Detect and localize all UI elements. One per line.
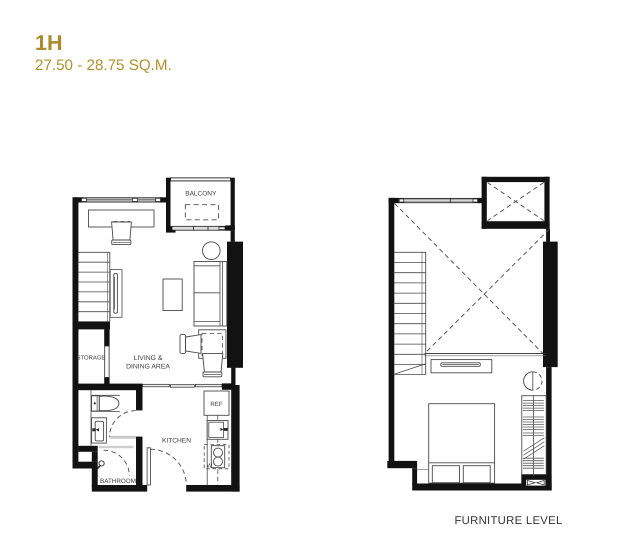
svg-text:KITCHEN: KITCHEN — [162, 437, 191, 444]
svg-text:FURNITURE LEVEL: FURNITURE LEVEL — [454, 515, 562, 527]
svg-text:W: W — [207, 463, 213, 470]
svg-text:LIVING &: LIVING & — [134, 355, 163, 362]
svg-text:DINING AREA: DINING AREA — [126, 364, 170, 371]
svg-text:27.50 - 28.75 SQ.M.: 27.50 - 28.75 SQ.M. — [35, 57, 172, 74]
svg-text:BATHROOM: BATHROOM — [100, 478, 136, 485]
svg-text:REF: REF — [210, 401, 223, 408]
svg-text:STORAGE: STORAGE — [77, 354, 106, 361]
svg-text:1H: 1H — [35, 31, 62, 55]
svg-text:BALCONY: BALCONY — [185, 190, 217, 197]
